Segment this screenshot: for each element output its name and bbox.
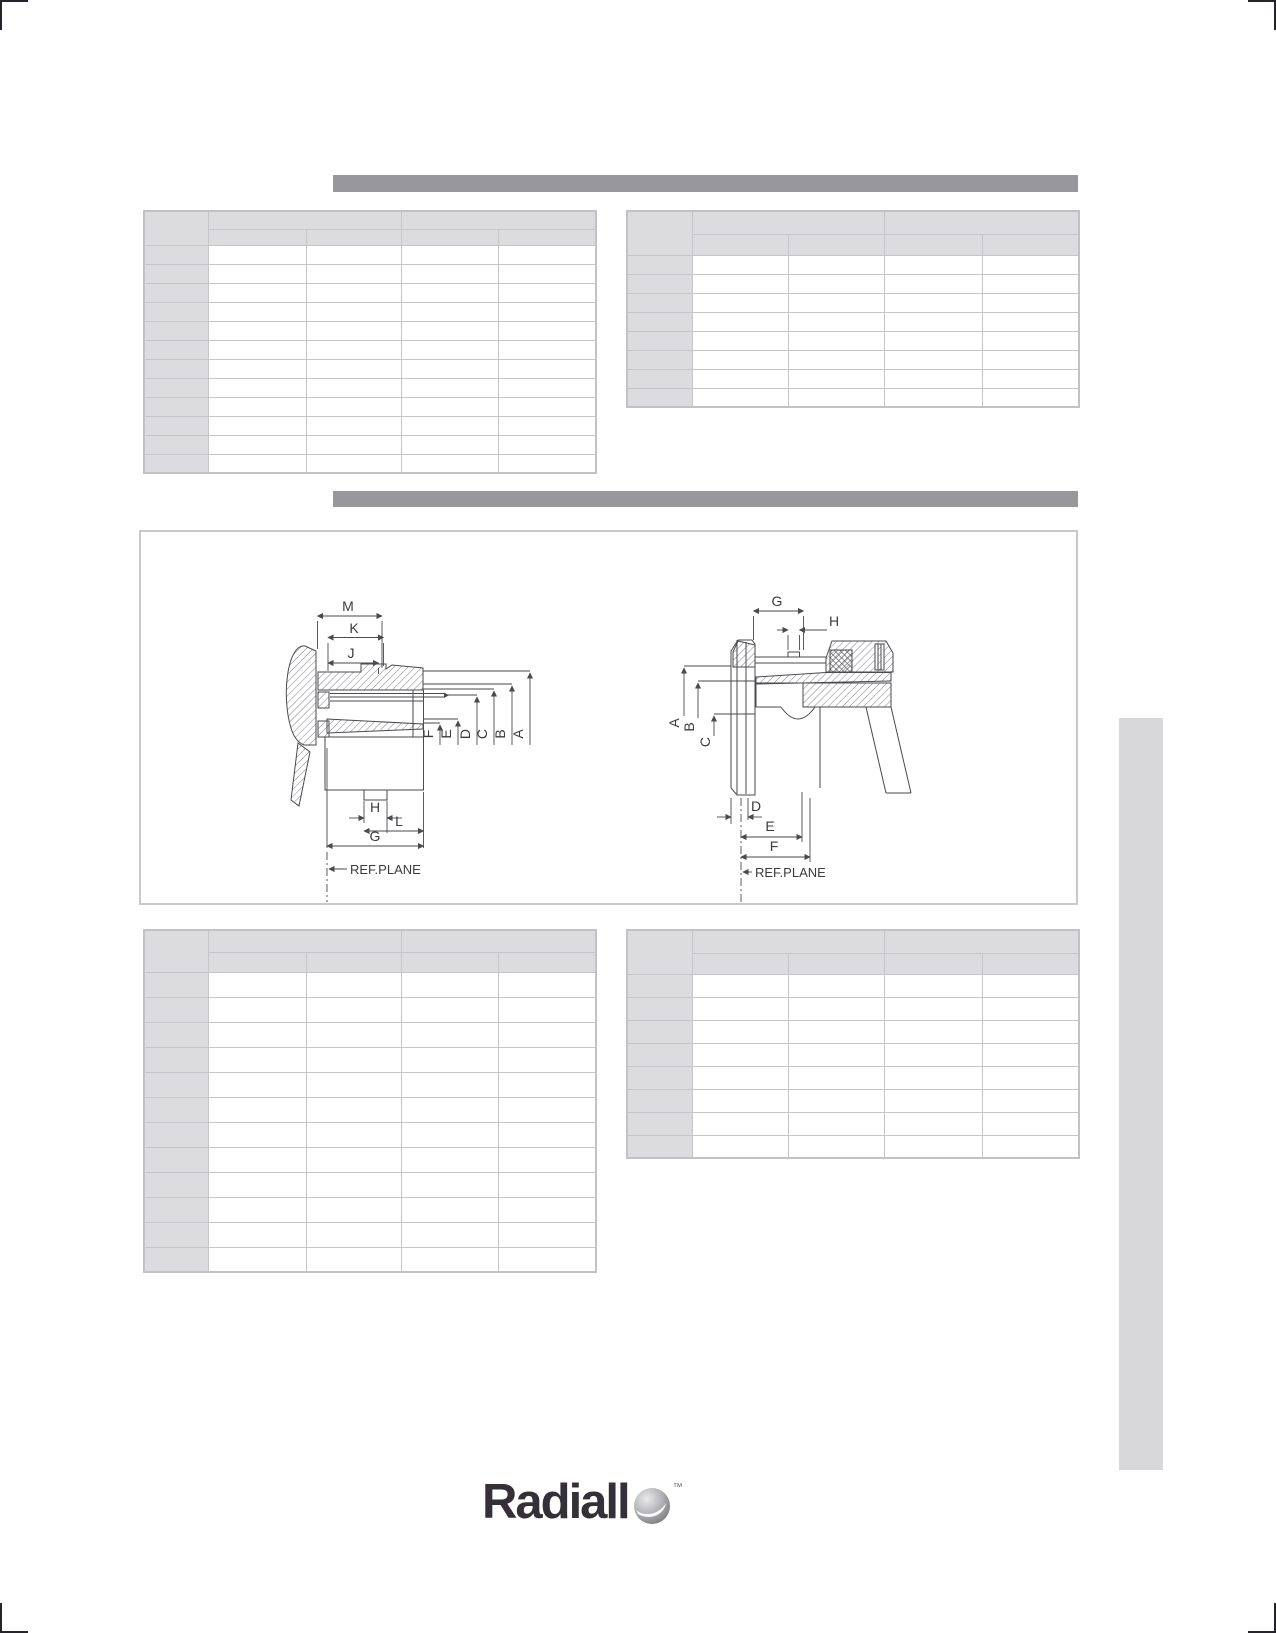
- table-row-header: [144, 416, 208, 435]
- table-cell: [306, 264, 401, 283]
- table-cell: [498, 1022, 596, 1047]
- dim-label-c-right: C: [697, 737, 713, 747]
- table-sub-header: [788, 953, 884, 974]
- table-cell: [498, 1147, 596, 1172]
- table-row: [144, 1222, 596, 1247]
- table-cell: [306, 1247, 401, 1272]
- table-cell: [788, 274, 884, 293]
- table-cell: [401, 1097, 498, 1122]
- table-cell: [306, 1022, 401, 1047]
- table-cell: [788, 312, 884, 331]
- dim-label-g-right: G: [772, 593, 783, 609]
- table-cell: [692, 369, 788, 388]
- table-cell: [788, 1020, 884, 1043]
- table-cell: [208, 1247, 306, 1272]
- table-row: [144, 1147, 596, 1172]
- table-cell: [982, 1135, 1079, 1158]
- table-row: [144, 1097, 596, 1122]
- left-connector-drawing: M K J F E D C B A H L G REF.PLANE: [255, 590, 565, 910]
- table-row-header: [627, 312, 692, 331]
- table-cell: [208, 1122, 306, 1147]
- table-cell: [982, 350, 1079, 369]
- table-cell: [306, 397, 401, 416]
- table-cell: [788, 974, 884, 997]
- table-cell: [692, 1112, 788, 1135]
- table-cell: [401, 283, 498, 302]
- dim-label-c: C: [474, 729, 490, 739]
- table-cell: [401, 1022, 498, 1047]
- table-cell: [884, 997, 982, 1020]
- table-cell: [498, 397, 596, 416]
- section-title-bar-1: [333, 175, 1078, 192]
- table-group-header: [884, 930, 1079, 953]
- table-sub-header: [306, 952, 401, 972]
- table-cell: [884, 350, 982, 369]
- table-cell: [884, 1089, 982, 1112]
- table-cell: [208, 1097, 306, 1122]
- table-group-header: [208, 211, 401, 229]
- table-row: [627, 1043, 1079, 1066]
- table-row: [627, 1020, 1079, 1043]
- table-row: [627, 350, 1079, 369]
- dim-label-b-right: B: [681, 722, 697, 731]
- table-cell: [306, 435, 401, 454]
- table-cell: [498, 454, 596, 473]
- table-row: [144, 302, 596, 321]
- table-cell: [498, 1222, 596, 1247]
- table-cell: [884, 1066, 982, 1089]
- table-sub-header: [306, 229, 401, 245]
- table-cell: [692, 350, 788, 369]
- table-cell: [208, 397, 306, 416]
- table-cell: [401, 1072, 498, 1097]
- table-group-header: [692, 211, 884, 234]
- dim-label-g: G: [370, 828, 381, 844]
- table-cell: [692, 1020, 788, 1043]
- table-cell: [306, 1147, 401, 1172]
- table-row-header: [144, 1172, 208, 1197]
- table-cell: [692, 1043, 788, 1066]
- table-cell: [208, 302, 306, 321]
- table-cell: [498, 1097, 596, 1122]
- table-cell: [884, 974, 982, 997]
- page-side-tab: [1119, 718, 1163, 1470]
- table-cell: [692, 997, 788, 1020]
- table-sub-header: [692, 234, 788, 255]
- table-cell: [306, 283, 401, 302]
- table-row: [144, 283, 596, 302]
- dim-label-b: B: [492, 729, 508, 738]
- table-cell: [982, 997, 1079, 1020]
- table-cell: [982, 312, 1079, 331]
- table-cell: [208, 245, 306, 264]
- table-cell: [788, 1043, 884, 1066]
- ref-plane-label-left: REF.PLANE: [350, 862, 421, 877]
- table-cell: [401, 416, 498, 435]
- table-cell: [306, 1047, 401, 1072]
- table-cell: [498, 1047, 596, 1072]
- table-row-header: [144, 245, 208, 264]
- dim-label-d-right: D: [751, 798, 761, 814]
- table-row-header: [144, 1222, 208, 1247]
- table-cell: [982, 1020, 1079, 1043]
- table-cell: [306, 359, 401, 378]
- table-row: [144, 1072, 596, 1097]
- table-cell: [208, 1172, 306, 1197]
- table-cell: [788, 997, 884, 1020]
- table-cell: [692, 1135, 788, 1158]
- table-cell: [498, 416, 596, 435]
- table-cell: [401, 1197, 498, 1222]
- section-title-bar-2: [333, 491, 1078, 507]
- table-cell: [208, 1147, 306, 1172]
- table-cell: [884, 1112, 982, 1135]
- table-row-header: [144, 1047, 208, 1072]
- table-group-header: [401, 930, 596, 952]
- table-cell: [208, 1072, 306, 1097]
- table-cell: [788, 255, 884, 274]
- table-cell: [401, 245, 498, 264]
- table-cell: [306, 302, 401, 321]
- table-cell: [401, 302, 498, 321]
- table-row-header: [627, 293, 692, 312]
- table-cell: [884, 1020, 982, 1043]
- crop-mark-top-right-h: [1248, 0, 1276, 2]
- table-cell: [982, 255, 1079, 274]
- table-row-header: [627, 274, 692, 293]
- table-row-header: [144, 340, 208, 359]
- table-row: [144, 1197, 596, 1222]
- table-row: [144, 1247, 596, 1272]
- table-cell: [884, 1043, 982, 1066]
- table-cell: [306, 416, 401, 435]
- table-cell: [306, 997, 401, 1022]
- table-row: [627, 1089, 1079, 1112]
- table-cell: [401, 435, 498, 454]
- table-cell: [788, 369, 884, 388]
- table-cell: [208, 378, 306, 397]
- table-cell: [401, 454, 498, 473]
- table-row: [144, 359, 596, 378]
- table-group-header: [692, 930, 884, 953]
- dim-label-a: A: [510, 729, 526, 739]
- table-cell: [498, 359, 596, 378]
- dim-label-a-right: A: [666, 718, 682, 728]
- table-group-header: [884, 211, 1079, 234]
- table-sub-header: [401, 952, 498, 972]
- table-sub-header: [982, 234, 1079, 255]
- table-cell: [884, 369, 982, 388]
- table-row-header: [144, 264, 208, 283]
- table-cell: [401, 1222, 498, 1247]
- table-cell: [498, 1247, 596, 1272]
- table-row-header: [144, 378, 208, 397]
- dim-label-m: M: [342, 598, 354, 614]
- crop-mark-bottom-left-v: [0, 1603, 2, 1633]
- table-cell: [884, 1135, 982, 1158]
- dim-label-l: L: [395, 813, 403, 829]
- table-cell: [306, 454, 401, 473]
- table-row-header: [144, 1247, 208, 1272]
- table-row-header: [627, 369, 692, 388]
- table-cell: [982, 1066, 1079, 1089]
- table-sub-header: [884, 234, 982, 255]
- crop-mark-top-left-v: [0, 0, 2, 30]
- table-sub-header: [884, 953, 982, 974]
- table-cell: [401, 1147, 498, 1172]
- table-cell: [306, 378, 401, 397]
- table-cell: [401, 359, 498, 378]
- dim-label-k: K: [349, 620, 359, 636]
- table-row-header: [144, 972, 208, 997]
- table-row: [627, 1135, 1079, 1158]
- table-cell: [692, 974, 788, 997]
- table-cell: [884, 331, 982, 350]
- table-sub-header: [208, 952, 306, 972]
- table-cell: [982, 274, 1079, 293]
- table-cell: [982, 369, 1079, 388]
- table-row-header: [627, 1089, 692, 1112]
- table-cell: [208, 435, 306, 454]
- table-row: [144, 245, 596, 264]
- table-cell: [208, 340, 306, 359]
- table-cell: [884, 255, 982, 274]
- table-cell: [498, 997, 596, 1022]
- table-cell: [208, 321, 306, 340]
- table-cell: [982, 331, 1079, 350]
- table-cell: [692, 312, 788, 331]
- table-cell: [401, 972, 498, 997]
- table-row: [144, 1022, 596, 1047]
- table-row: [627, 312, 1079, 331]
- table-cell: [884, 388, 982, 407]
- table-cell: [498, 245, 596, 264]
- table-cell: [208, 416, 306, 435]
- table-cell: [982, 293, 1079, 312]
- table-row: [144, 416, 596, 435]
- table-cell: [692, 331, 788, 350]
- right-connector-drawing: G H A B C D E F REF.PLANE: [645, 590, 935, 910]
- table-row-header: [144, 1097, 208, 1122]
- table-cell: [982, 388, 1079, 407]
- table-group-header: [208, 930, 401, 952]
- dim-label-h-right: H: [829, 613, 839, 629]
- table-cell: [401, 340, 498, 359]
- spec-table-bottom-right: [626, 929, 1080, 1159]
- dim-label-j: J: [348, 645, 355, 661]
- table-sub-header: [401, 229, 498, 245]
- table-cell: [208, 1197, 306, 1222]
- table-cell: [498, 302, 596, 321]
- table-row-header: [144, 321, 208, 340]
- table-cell: [208, 264, 306, 283]
- table-corner-header: [144, 930, 208, 972]
- table-cell: [982, 1089, 1079, 1112]
- table-row-header: [627, 255, 692, 274]
- table-row-header: [627, 974, 692, 997]
- table-cell: [401, 1247, 498, 1272]
- table-corner-header: [627, 211, 692, 255]
- table-cell: [306, 245, 401, 264]
- dim-label-e: E: [438, 729, 454, 738]
- table-row: [627, 388, 1079, 407]
- table-cell: [788, 1066, 884, 1089]
- table-row: [627, 331, 1079, 350]
- table-cell: [306, 321, 401, 340]
- datasheet-page: { "page": { "type": "technical-datasheet…: [0, 0, 1276, 1633]
- table-corner-header: [627, 930, 692, 974]
- dim-label-e-right: E: [765, 818, 774, 834]
- table-cell: [208, 359, 306, 378]
- table-row: [144, 435, 596, 454]
- table-cell: [498, 1072, 596, 1097]
- table-cell: [498, 283, 596, 302]
- table-cell: [692, 1066, 788, 1089]
- table-cell: [208, 1022, 306, 1047]
- table-cell: [498, 435, 596, 454]
- table-row-header: [144, 359, 208, 378]
- dim-label-d: D: [457, 729, 473, 739]
- table-cell: [692, 255, 788, 274]
- radiall-globe-icon: [632, 1486, 672, 1526]
- table-cell: [401, 1122, 498, 1147]
- table-row: [627, 274, 1079, 293]
- table-cell: [306, 1197, 401, 1222]
- ref-plane-label-right: REF.PLANE: [755, 865, 826, 880]
- table-row: [144, 454, 596, 473]
- table-sub-header: [692, 953, 788, 974]
- table-row: [144, 997, 596, 1022]
- table-cell: [788, 1112, 884, 1135]
- table-cell: [982, 1112, 1079, 1135]
- table-row: [627, 369, 1079, 388]
- table-cell: [788, 350, 884, 369]
- table-cell: [498, 1172, 596, 1197]
- table-cell: [884, 293, 982, 312]
- table-row-header: [627, 350, 692, 369]
- table-cell: [306, 972, 401, 997]
- table-cell: [788, 388, 884, 407]
- table-sub-header: [498, 952, 596, 972]
- table-cell: [401, 378, 498, 397]
- table-row-header: [627, 1135, 692, 1158]
- table-cell: [306, 1097, 401, 1122]
- table-cell: [401, 1172, 498, 1197]
- table-row: [144, 1122, 596, 1147]
- table-row-header: [144, 1022, 208, 1047]
- table-row-header: [144, 283, 208, 302]
- table-row-header: [144, 397, 208, 416]
- table-cell: [884, 274, 982, 293]
- table-cell: [208, 997, 306, 1022]
- table-cell: [498, 1122, 596, 1147]
- table-cell: [788, 1089, 884, 1112]
- table-cell: [401, 321, 498, 340]
- table-cell: [306, 1222, 401, 1247]
- radiall-logo: Radiall ™: [482, 1478, 683, 1527]
- table-cell: [692, 1089, 788, 1112]
- table-cell: [498, 264, 596, 283]
- table-cell: [498, 378, 596, 397]
- table-row-header: [627, 388, 692, 407]
- table-cell: [498, 340, 596, 359]
- table-cell: [208, 283, 306, 302]
- table-cell: [692, 293, 788, 312]
- spec-table-bottom-left: [143, 929, 597, 1273]
- table-sub-header: [982, 953, 1079, 974]
- table-sub-header: [788, 234, 884, 255]
- table-row-header: [627, 1020, 692, 1043]
- table-row-header: [144, 997, 208, 1022]
- table-corner-header: [144, 211, 208, 245]
- table-row-header: [627, 1112, 692, 1135]
- table-row-header: [627, 1066, 692, 1089]
- table-row-header: [627, 1043, 692, 1066]
- table-cell: [788, 331, 884, 350]
- trademark-symbol: ™: [673, 1482, 683, 1493]
- table-row-header: [627, 331, 692, 350]
- table-row: [627, 997, 1079, 1020]
- table-row-header: [144, 1197, 208, 1222]
- table-cell: [498, 972, 596, 997]
- dim-label-f: F: [420, 730, 436, 739]
- table-cell: [306, 340, 401, 359]
- table-row: [627, 1066, 1079, 1089]
- spec-table-top-right: [626, 210, 1080, 408]
- table-cell: [788, 1135, 884, 1158]
- table-cell: [401, 264, 498, 283]
- table-row: [627, 974, 1079, 997]
- table-cell: [401, 1047, 498, 1072]
- table-row: [627, 255, 1079, 274]
- table-cell: [692, 388, 788, 407]
- table-cell: [208, 454, 306, 473]
- table-row: [144, 378, 596, 397]
- table-cell: [306, 1072, 401, 1097]
- table-sub-header: [208, 229, 306, 245]
- table-cell: [498, 1197, 596, 1222]
- table-cell: [982, 974, 1079, 997]
- table-row-header: [627, 997, 692, 1020]
- table-sub-header: [498, 229, 596, 245]
- spec-table-top-left: [143, 210, 597, 474]
- table-cell: [401, 397, 498, 416]
- table-cell: [884, 312, 982, 331]
- table-row-header: [144, 435, 208, 454]
- table-cell: [208, 1047, 306, 1072]
- table-cell: [498, 321, 596, 340]
- table-row-header: [144, 1147, 208, 1172]
- table-row-header: [144, 1072, 208, 1097]
- table-group-header: [401, 211, 596, 229]
- table-cell: [208, 1222, 306, 1247]
- table-row: [144, 1047, 596, 1072]
- table-row: [144, 972, 596, 997]
- table-row: [627, 293, 1079, 312]
- table-row: [144, 340, 596, 359]
- dim-label-h: H: [370, 799, 380, 815]
- table-cell: [208, 972, 306, 997]
- table-cell: [982, 1043, 1079, 1066]
- table-row: [144, 397, 596, 416]
- table-row-header: [144, 302, 208, 321]
- table-cell: [788, 293, 884, 312]
- table-row: [627, 1112, 1079, 1135]
- table-cell: [692, 274, 788, 293]
- dim-label-f-right: F: [770, 838, 779, 854]
- table-row: [144, 264, 596, 283]
- table-cell: [306, 1122, 401, 1147]
